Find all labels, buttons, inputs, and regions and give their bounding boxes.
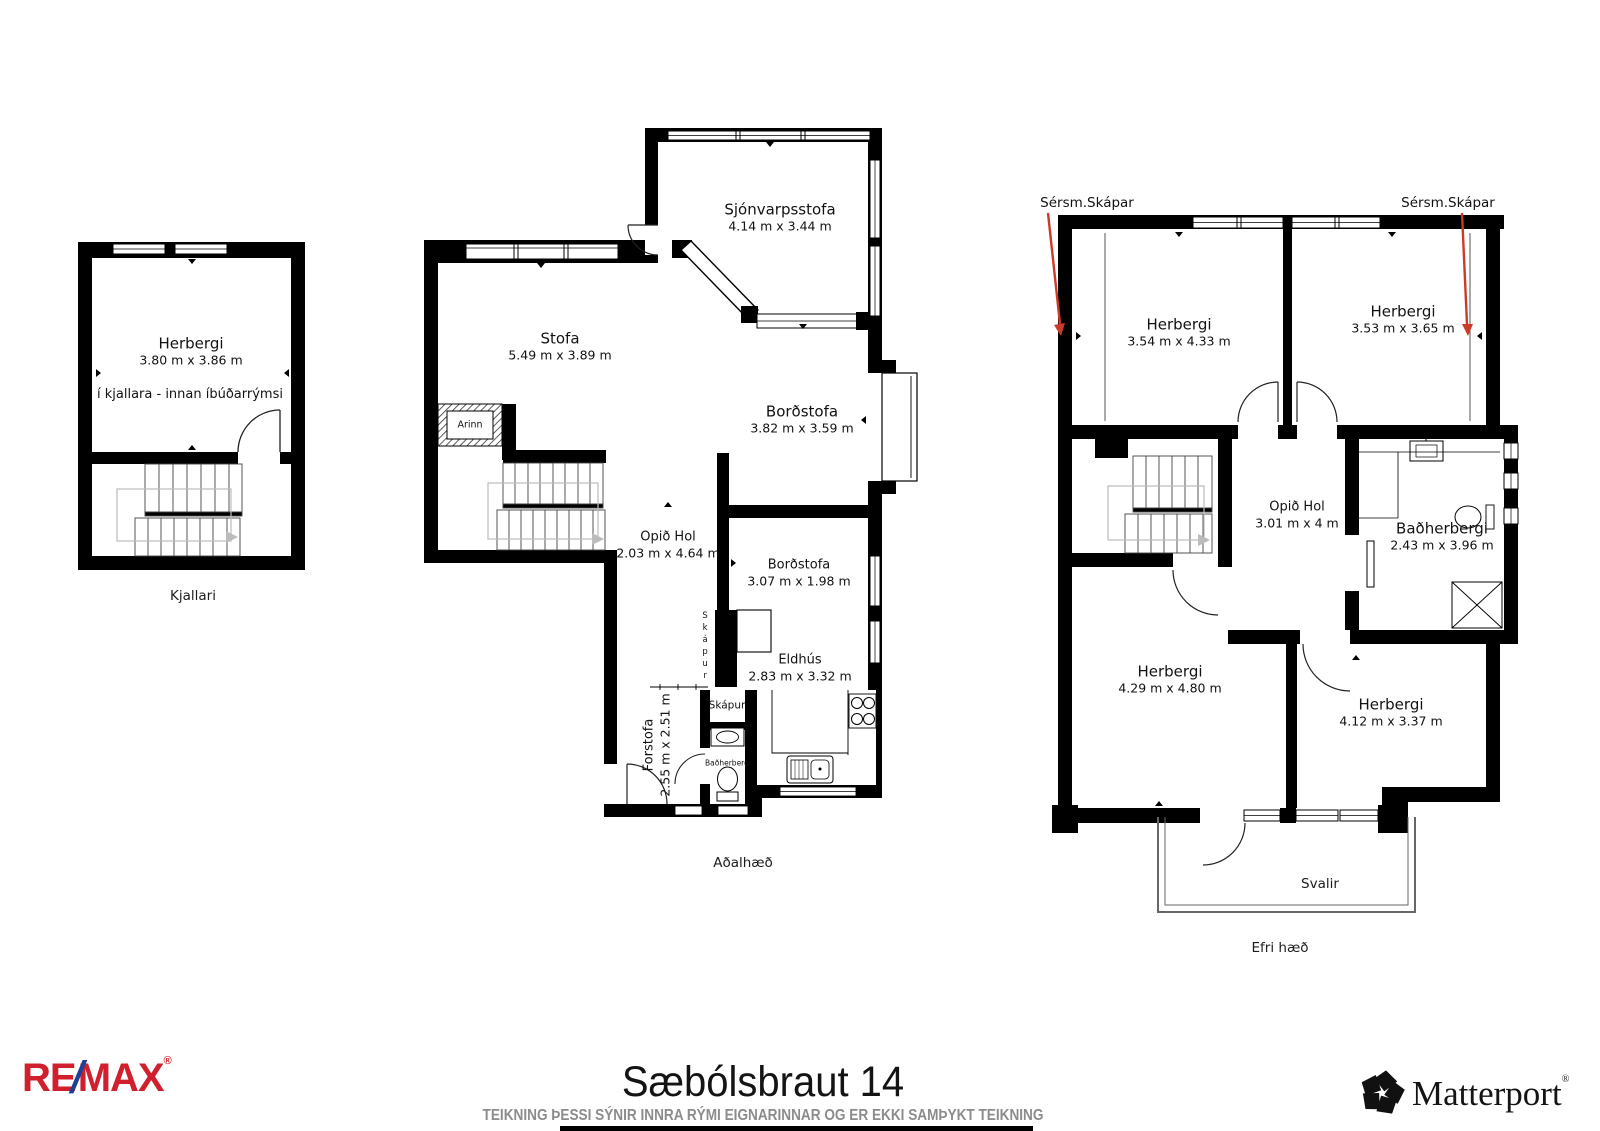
room-name: Borðstofa [747,558,850,574]
room-name: Borðstofa [750,403,853,421]
sheet-title: Sæbólsbraut 14 [622,1058,904,1107]
floor-label-adalhaed: Aðalhæð [713,855,773,871]
room-label-herbergi-nw: Herbergi 3.54 m x 4.33 m [1127,316,1230,349]
floor-label-kjallari: Kjallari [170,588,216,604]
room-label-opid-hol-efri: Opið Hol 3.01 m x 4 m [1255,500,1338,531]
room-label-eldhus: Eldhús 2.83 m x 3.32 m [748,653,851,684]
room-label-herbergi-ne: Herbergi 3.53 m x 3.65 m [1351,303,1454,336]
room-dims: 3.82 m x 3.59 m [750,421,853,436]
balcony-label: Svalir [1301,876,1339,892]
room-name: Baðherbergi [1390,520,1493,538]
room-dims: 2.03 m x 4.64 m [616,545,719,560]
matterport-wordmark: Matterport [1412,1074,1562,1113]
kitchen-fixtures [772,690,876,783]
floorplan-sheet: Herbergi 3.80 m x 3.86 m í kjallara - in… [0,0,1600,1131]
room-dims: 4.14 m x 3.44 m [724,219,835,234]
balcony [1158,817,1415,912]
room-label-herbergi-sw: Herbergi 4.29 m x 4.80 m [1118,663,1221,696]
room-dims: 3.01 m x 4 m [1255,515,1338,530]
kjallari-plan [78,242,305,570]
room-dims: 2.43 m x 3.96 m [1390,538,1493,553]
room-name: Herbergi [1127,316,1230,334]
room-dims: 3.54 m x 4.33 m [1127,334,1230,349]
room-name: Sjónvarpsstofa [724,201,835,219]
room-label-herbergi-se: Herbergi 4.12 m x 3.37 m [1339,696,1442,729]
room-label-stofa: Stofa 5.49 m x 3.89 m [508,330,611,363]
room-dims: 2.55 m x 2.51 m [657,693,672,796]
room-name: Opið Hol [616,530,719,546]
remax-logo: RE/MAX® [22,1056,171,1101]
room-label-forstofa: Forstofa 2.55 m x 2.51 m [642,693,673,796]
room-dims: 3.53 m x 3.65 m [1351,321,1454,336]
room-dims: 2.83 m x 3.32 m [748,668,851,683]
room-label-opid-hol-main: Opið Hol 2.03 m x 4.64 m [616,530,719,561]
room-dims: 3.07 m x 1.98 m [747,573,850,588]
room-name: Stofa [508,330,611,348]
matterport-registered-mark: ® [1562,1074,1570,1085]
adalhaed-stairs [497,463,605,550]
room-dims: 4.29 m x 4.80 m [1118,681,1221,696]
room-label-badherbergi-efri: Baðherbergi 2.43 m x 3.96 m [1390,520,1493,553]
room-name: Herbergi [1118,663,1221,681]
room-name: Eldhús [748,653,851,669]
room-name: Herbergi [1339,696,1442,714]
kjallari-note: í kjallara - innan íbúðarrýmsi [97,387,283,403]
fireplace-label: Arinn [457,419,482,430]
sheet-disclaimer: TEIKNING ÞESSI SÝNIR INNRA RÝMI EIGNARIN… [483,1107,1044,1125]
matterport-logo: Matterport® [1412,1074,1569,1114]
remax-registered-mark: ® [164,1055,171,1067]
room-dims: 3.80 m x 3.86 m [139,353,242,368]
room-dims: 5.49 m x 3.89 m [508,348,611,363]
room-label-sjonvarpsstofa: Sjónvarpsstofa 4.14 m x 3.44 m [724,201,835,234]
remax-max: MAX [78,1056,164,1100]
room-label-badherbergi-main: Baðherbergi [705,759,751,768]
footer-rule [560,1126,1033,1131]
closet-note-left: Sérsm.Skápar [1040,195,1134,211]
room-label-bordstofa: Borðstofa 3.82 m x 3.59 m [750,403,853,436]
room-name: Opið Hol [1255,500,1338,516]
room-dims: 4.12 m x 3.37 m [1339,714,1442,729]
room-name: Forstofa [642,693,658,796]
closet-label-vertical: Skápur [700,611,710,683]
room-label-kjallari-herbergi: Herbergi 3.80 m x 3.86 m [139,335,242,368]
room-name: Herbergi [139,335,242,353]
closet-note-right: Sérsm.Skápar [1401,195,1495,211]
room-label-bordstofa2: Borðstofa 3.07 m x 1.98 m [747,558,850,589]
room-name: Herbergi [1351,303,1454,321]
matterport-icon [1356,1069,1406,1120]
closet-label-box: Skápur [709,700,746,713]
floor-label-efri-haed: Efri hæð [1252,940,1309,956]
